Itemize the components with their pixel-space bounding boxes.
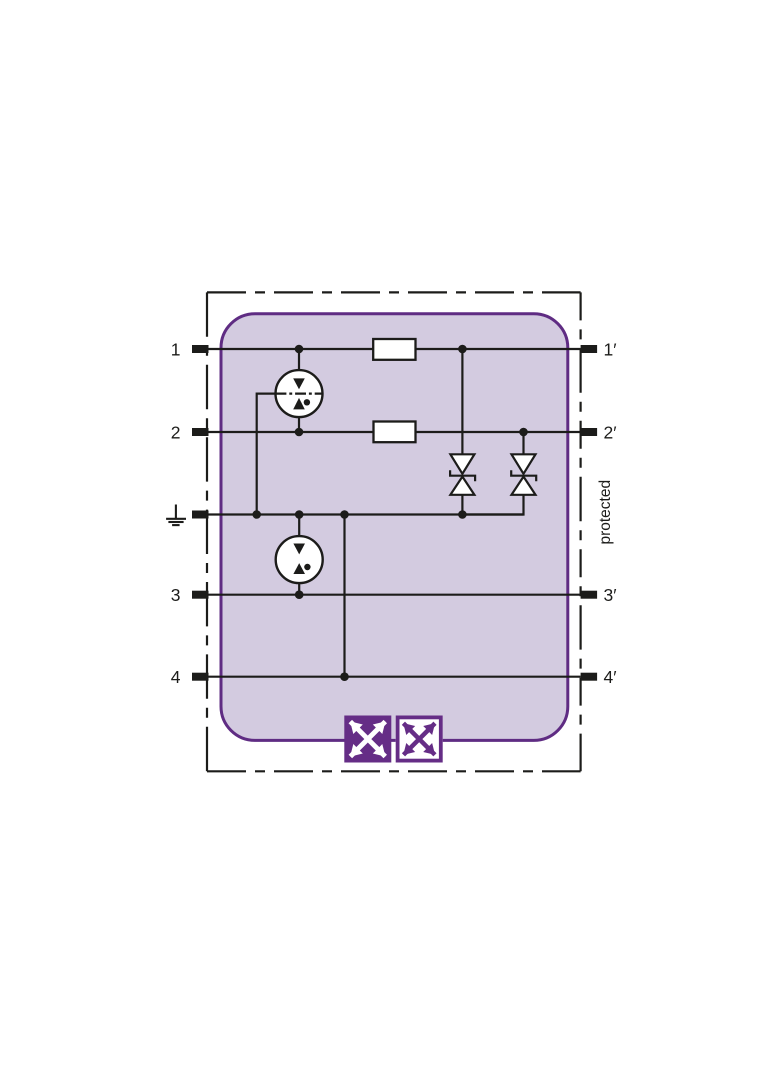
svg-text:protected: protected [597, 480, 614, 545]
svg-text:3′: 3′ [604, 585, 617, 605]
svg-text:2′: 2′ [604, 422, 617, 442]
svg-text:2: 2 [171, 422, 181, 442]
svg-text:3: 3 [171, 585, 181, 605]
svg-text:1′: 1′ [604, 339, 617, 359]
svg-text:4: 4 [171, 667, 181, 687]
svg-text:1: 1 [171, 339, 181, 359]
svg-text:4′: 4′ [604, 667, 617, 687]
